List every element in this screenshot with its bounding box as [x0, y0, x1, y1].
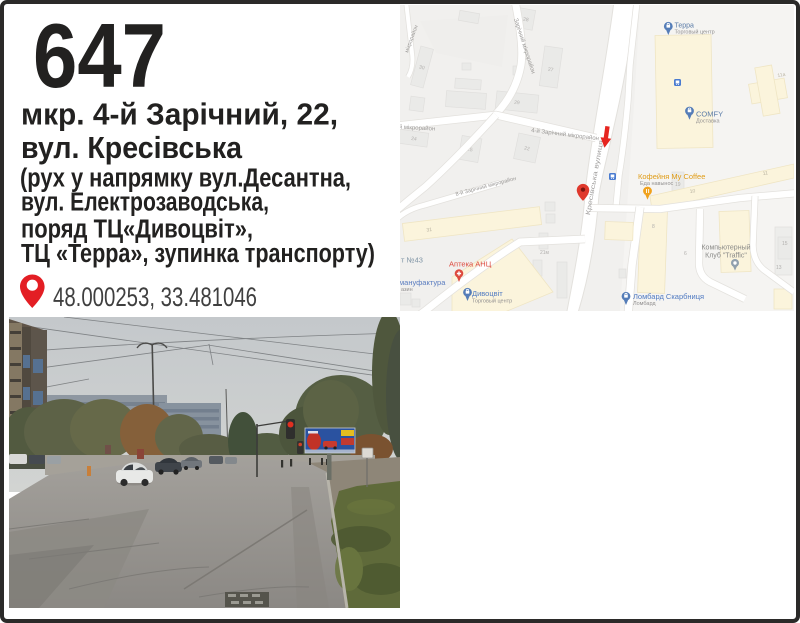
- svg-text:мкр. 4-й Зарічний, 22,: мкр. 4-й Зарічний, 22,: [21, 97, 338, 132]
- svg-text:Кофейня My Coffee: Кофейня My Coffee: [638, 172, 705, 181]
- svg-text:29: 29: [514, 100, 520, 107]
- svg-text:Еда навынос: Еда навынос: [640, 181, 674, 187]
- svg-text:Аптека АНЦ: Аптека АНЦ: [449, 260, 492, 269]
- svg-text:6: 6: [684, 251, 687, 257]
- svg-text:8: 8: [652, 224, 655, 230]
- svg-text:48.000253, 33.481046: 48.000253, 33.481046: [53, 282, 257, 312]
- svg-text:27: 27: [547, 67, 554, 74]
- svg-text:31: 31: [426, 227, 432, 234]
- svg-text:вул. Електрозаводська,: вул. Електрозаводська,: [21, 189, 269, 217]
- svg-text:Компьютерный: Компьютерный: [701, 244, 750, 252]
- svg-text:Торговый центр: Торговый центр: [472, 297, 512, 304]
- svg-text:19: 19: [675, 182, 681, 188]
- svg-text:Торговый центр: Торговый центр: [675, 29, 715, 36]
- svg-text:Дивоцвіт: Дивоцвіт: [472, 289, 503, 298]
- svg-text:21м: 21м: [540, 250, 550, 256]
- svg-text:15: 15: [782, 241, 788, 247]
- svg-text:Ломбард: Ломбард: [633, 301, 656, 307]
- svg-text:647: 647: [33, 6, 166, 107]
- svg-text:Ломбард Скарбниця: Ломбард Скарбниця: [633, 292, 704, 301]
- svg-text:COMFY: COMFY: [696, 110, 723, 119]
- svg-text:ТЦ «Терра», зупинка транспорту: ТЦ «Терра», зупинка транспорту): [21, 240, 375, 268]
- svg-text:Доставка: Доставка: [696, 118, 721, 124]
- svg-text:24: 24: [411, 136, 418, 143]
- svg-text:Клуб "Traffic": Клуб "Traffic": [705, 252, 747, 260]
- svg-text:т №43: т №43: [401, 256, 423, 265]
- svg-text:13: 13: [776, 265, 782, 271]
- svg-text:вул. Кресівська: вул. Кресівська: [21, 130, 243, 165]
- svg-text:мануфактура: мануфактура: [400, 278, 446, 287]
- svg-text:азин: азин: [401, 287, 413, 293]
